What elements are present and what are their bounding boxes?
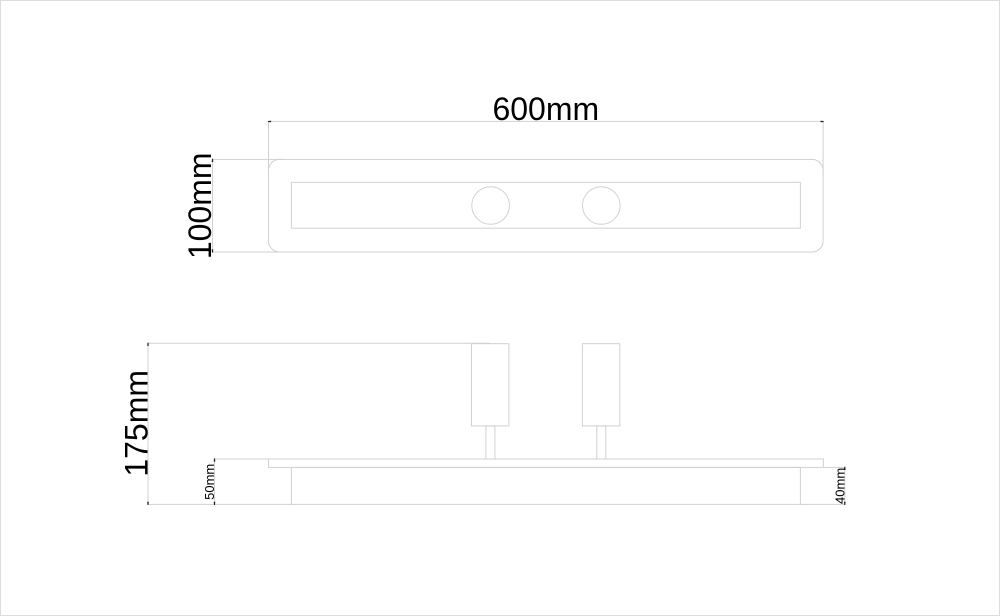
svg-text:175mm: 175mm [119,370,155,477]
svg-text:40mm: 40mm [832,468,847,504]
svg-text:100mm: 100mm [182,152,218,259]
svg-text:600mm: 600mm [492,91,599,127]
svg-text:50mm: 50mm [202,464,217,500]
